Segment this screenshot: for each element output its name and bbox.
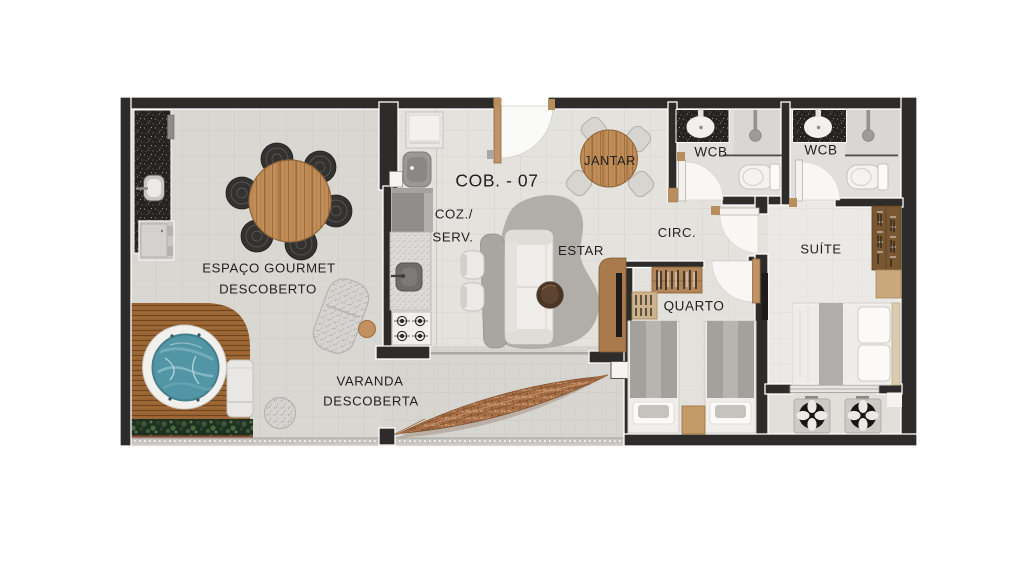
svg-text:WCB: WCB <box>804 143 837 158</box>
svg-text:DESCOBERTO: DESCOBERTO <box>219 282 317 297</box>
svg-text:ESTAR: ESTAR <box>558 243 604 258</box>
svg-text:DESCOBERTA: DESCOBERTA <box>323 394 419 409</box>
svg-text:WCB: WCB <box>694 145 727 160</box>
svg-text:QUARTO: QUARTO <box>664 299 725 314</box>
svg-text:COB. - 07: COB. - 07 <box>455 171 538 191</box>
svg-text:SUÍTE: SUÍTE <box>800 242 841 257</box>
svg-text:ESPAÇO GOURMET: ESPAÇO GOURMET <box>202 261 335 276</box>
svg-text:VARANDA: VARANDA <box>337 374 404 389</box>
svg-text:SERV.: SERV. <box>432 230 473 245</box>
svg-text:CIRC.: CIRC. <box>658 225 696 240</box>
svg-text:JANTAR: JANTAR <box>584 154 636 168</box>
svg-text:COZ./: COZ./ <box>435 207 473 222</box>
